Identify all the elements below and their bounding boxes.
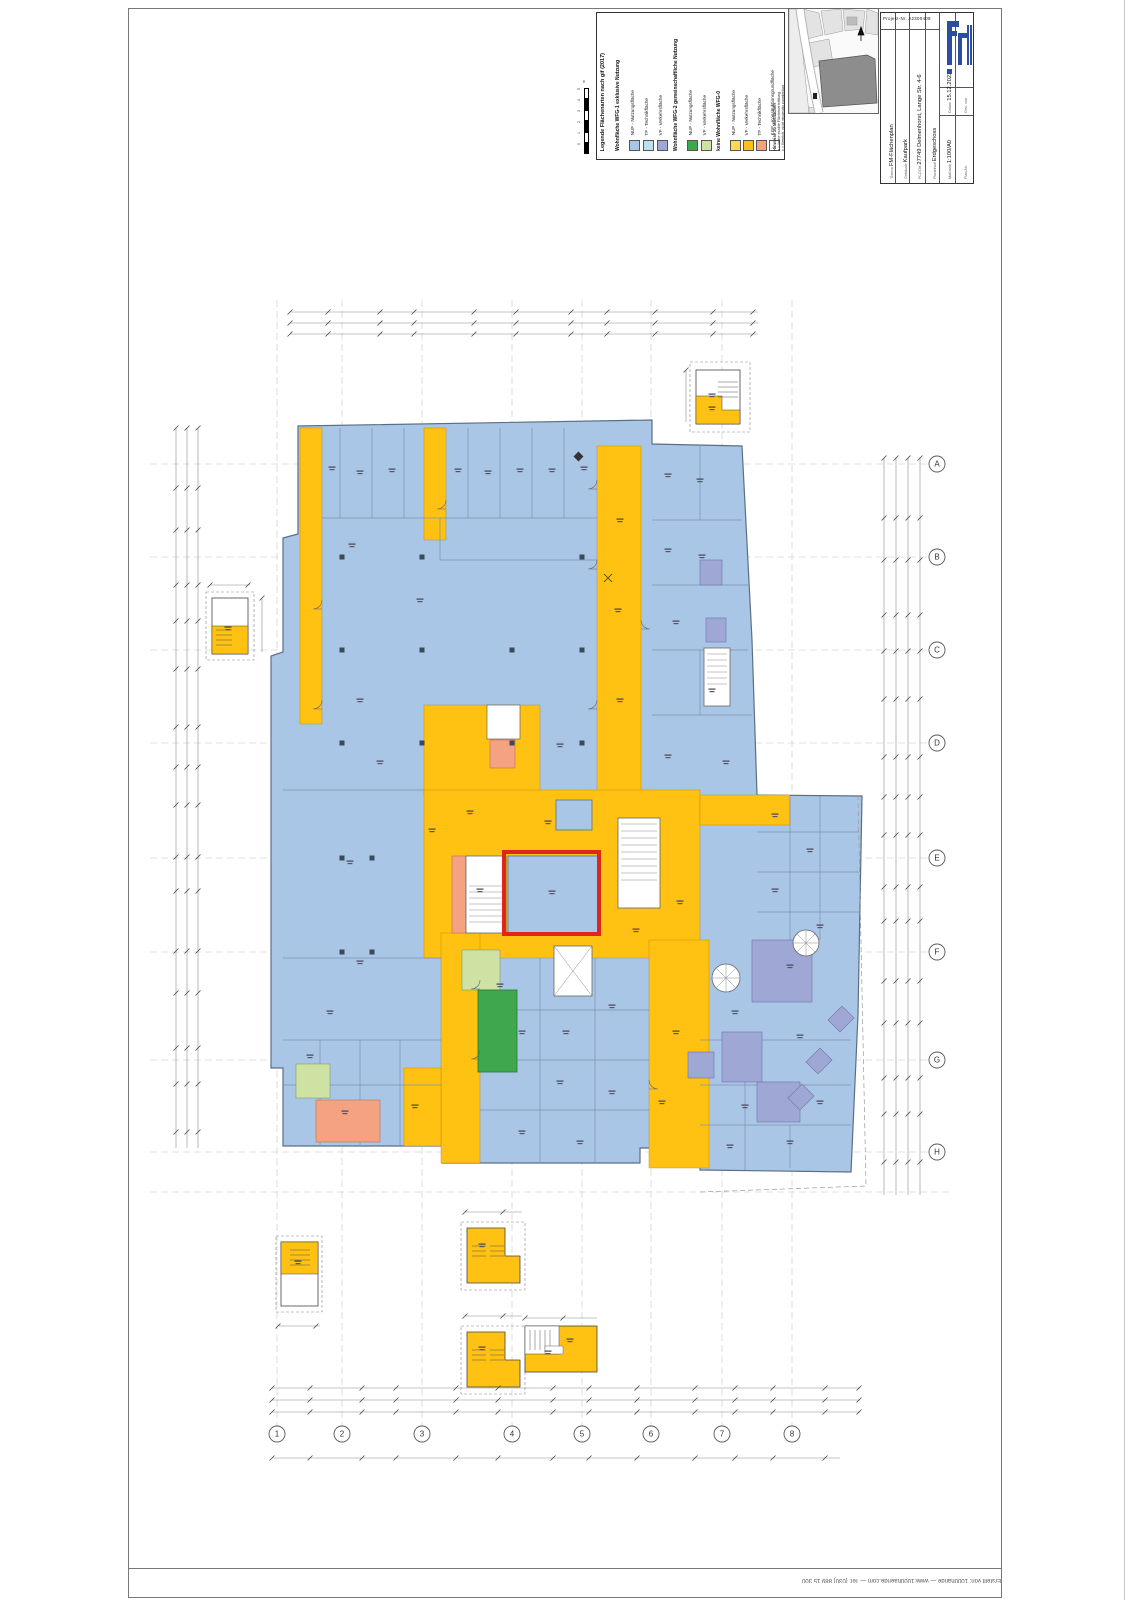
site-building <box>819 55 877 107</box>
drawing-sheet: 12345678ABCDEFGH Legende Flächenarten na… <box>0 0 1131 1600</box>
scale-bar-segment <box>584 121 589 132</box>
legend-swatch-label: NUF - Nutzungsfläche <box>631 90 636 135</box>
svg-text:6: 6 <box>649 1430 654 1439</box>
svg-text:2: 2 <box>340 1430 345 1439</box>
scale-bar-segment <box>584 110 589 121</box>
grid-bubble: C <box>929 642 945 658</box>
title-block-row: PLZ/Ort 27749 Delmenhorst, Lange Str. 4-… <box>912 33 929 179</box>
legend-item: TF - Technikfläche <box>643 27 656 151</box>
title-block-meta-cell: Gez. von <box>958 89 975 113</box>
legend-note-line: x = Bereich, nicht eindeutig zuordenbar <box>781 85 785 151</box>
scale-bar-segment <box>584 88 589 99</box>
legend-item: NUF - Nutzungsfläche <box>730 27 743 151</box>
legend-item: TF - Technikfläche <box>756 27 769 151</box>
svg-text:C: C <box>934 646 940 655</box>
legend-swatch <box>743 140 754 151</box>
logo-mark <box>947 21 952 65</box>
legend-swatch-label: NUF - Nutzungsfläche <box>689 90 694 135</box>
svg-text:F: F <box>935 948 940 957</box>
legend-swatch-label: NUF - Nutzungsfläche <box>732 90 737 135</box>
grid-bubble: 2 <box>334 1426 350 1442</box>
legend-item: VF - Verkehrsfläche <box>657 27 670 151</box>
project-number-cell: Projekt-Nr. A2300409 <box>883 16 937 21</box>
structural-column <box>370 856 375 861</box>
structural-column <box>580 648 585 653</box>
structural-column <box>340 741 345 746</box>
scale-bar-tick: 1 <box>578 132 582 134</box>
title-block-line <box>881 29 939 30</box>
scale-bar-tick: 4 <box>578 99 582 101</box>
structural-column <box>340 856 345 861</box>
scale-bar-tick: 2 <box>578 121 582 123</box>
legend-swatch <box>687 140 698 151</box>
legend-group-header: Wohnfläche WFG-2 gemeinschaftliche Nutzu… <box>674 39 679 151</box>
grid-bubble: 4 <box>504 1426 520 1442</box>
svg-text:5: 5 <box>580 1430 585 1439</box>
legend: Legende Flächenarten nach gif (2017)Wohn… <box>596 12 785 160</box>
logo-mark <box>967 25 969 65</box>
logo-mark <box>947 69 952 74</box>
legend-swatch <box>629 140 640 151</box>
svg-text:E: E <box>934 854 939 863</box>
legend-item: VF - Verkehrsfläche <box>701 27 714 151</box>
svg-text:4: 4 <box>510 1430 515 1439</box>
grid-bubble: E <box>929 850 945 866</box>
title-block-meta-cell: Datum 15.12.2023 <box>942 89 959 113</box>
grid-bubble: 5 <box>574 1426 590 1442</box>
svg-text:1: 1 <box>275 1430 280 1439</box>
title-block-line <box>939 115 973 116</box>
svg-text:G: G <box>934 1056 940 1065</box>
footer-credit: Erstellt von: 1000hände — www.1000haende… <box>765 1577 1001 1583</box>
scale-bar-segment <box>584 143 589 154</box>
logo-mark <box>952 21 959 27</box>
site-plan-thumbnail <box>788 8 879 114</box>
scale-bar-unit: m <box>583 80 587 83</box>
svg-text:A: A <box>934 460 940 469</box>
legend-swatch <box>657 140 668 151</box>
legend-item: NUF - Nutzungsfläche <box>687 27 700 151</box>
title-block: Projekt-Nr. A2300409Thema FM-Flächenplan… <box>880 12 974 184</box>
grid-bubble: B <box>929 549 945 565</box>
logo-mark <box>952 31 957 36</box>
structural-column <box>340 648 345 653</box>
grid-bubble: 3 <box>414 1426 430 1442</box>
legend-swatch-label: VF - Verkehrsfläche <box>745 95 750 135</box>
scale-bar: 543210m <box>578 88 594 156</box>
structural-column <box>420 648 425 653</box>
legend-swatch <box>756 140 767 151</box>
scale-bar-segment <box>584 132 589 143</box>
legend-title: Legende Flächenarten nach gif (2017) <box>601 53 607 151</box>
floor-plan-canvas: 12345678ABCDEFGH <box>0 0 1131 1600</box>
structural-column <box>580 555 585 560</box>
svg-text:H: H <box>934 1148 940 1157</box>
structural-column <box>420 741 425 746</box>
grid-bubble: A <box>929 456 945 472</box>
grid-bubble: 1 <box>269 1426 285 1442</box>
scale-bar-tick: 0 <box>578 143 582 145</box>
structural-column <box>340 950 345 955</box>
structural-column <box>510 648 515 653</box>
svg-text:7: 7 <box>720 1430 725 1439</box>
scale-bar-tick: 5 <box>578 88 582 90</box>
legend-group-header: Wohnfläche WFG-1 exklusive Nutzung <box>616 60 621 151</box>
legend-swatch-label: VF - Verkehrsfläche <box>659 95 664 135</box>
legend-swatch <box>730 140 741 151</box>
structural-column <box>510 741 515 746</box>
company-logo <box>941 17 971 85</box>
grid-bubble: G <box>929 1052 945 1068</box>
svg-text:8: 8 <box>790 1430 795 1439</box>
legend-swatch <box>643 140 654 151</box>
title-block-meta-cell: Maßstab 1:100/A0 <box>942 119 959 179</box>
structural-column <box>340 555 345 560</box>
structural-column <box>370 950 375 955</box>
grid-bubble: F <box>929 944 945 960</box>
svg-text:B: B <box>934 553 939 562</box>
svg-text:3: 3 <box>420 1430 425 1439</box>
grid-bubble: 7 <box>714 1426 730 1442</box>
scale-bar-tick: 3 <box>578 110 582 112</box>
logo-mark <box>970 25 972 65</box>
legend-item: NUF - Nutzungsfläche <box>629 27 642 151</box>
structural-column <box>580 741 585 746</box>
grid-bubble: 6 <box>643 1426 659 1442</box>
scale-bar-segment <box>584 99 589 110</box>
svg-text:D: D <box>934 739 940 748</box>
legend-swatch-label: TF - Technikfläche <box>645 98 650 135</box>
highlighted-room[interactable] <box>502 850 601 936</box>
title-block-line <box>939 87 973 88</box>
legend-swatch-label: VF - Verkehrsfläche <box>703 95 708 135</box>
legend-swatch <box>701 140 712 151</box>
title-block-meta-cell: Plan-Nr. <box>958 119 975 179</box>
grid-bubble: D <box>929 735 945 751</box>
legend-item: VF - Verkehrsfläche <box>743 27 756 151</box>
structural-column <box>420 555 425 560</box>
legend-group-header: keine Wohnfläche WFG-0 <box>717 91 722 151</box>
legend-swatch-label: TF - Technikfläche <box>758 98 763 135</box>
grid-bubble: H <box>929 1144 945 1160</box>
grid-bubble: 8 <box>784 1426 800 1442</box>
